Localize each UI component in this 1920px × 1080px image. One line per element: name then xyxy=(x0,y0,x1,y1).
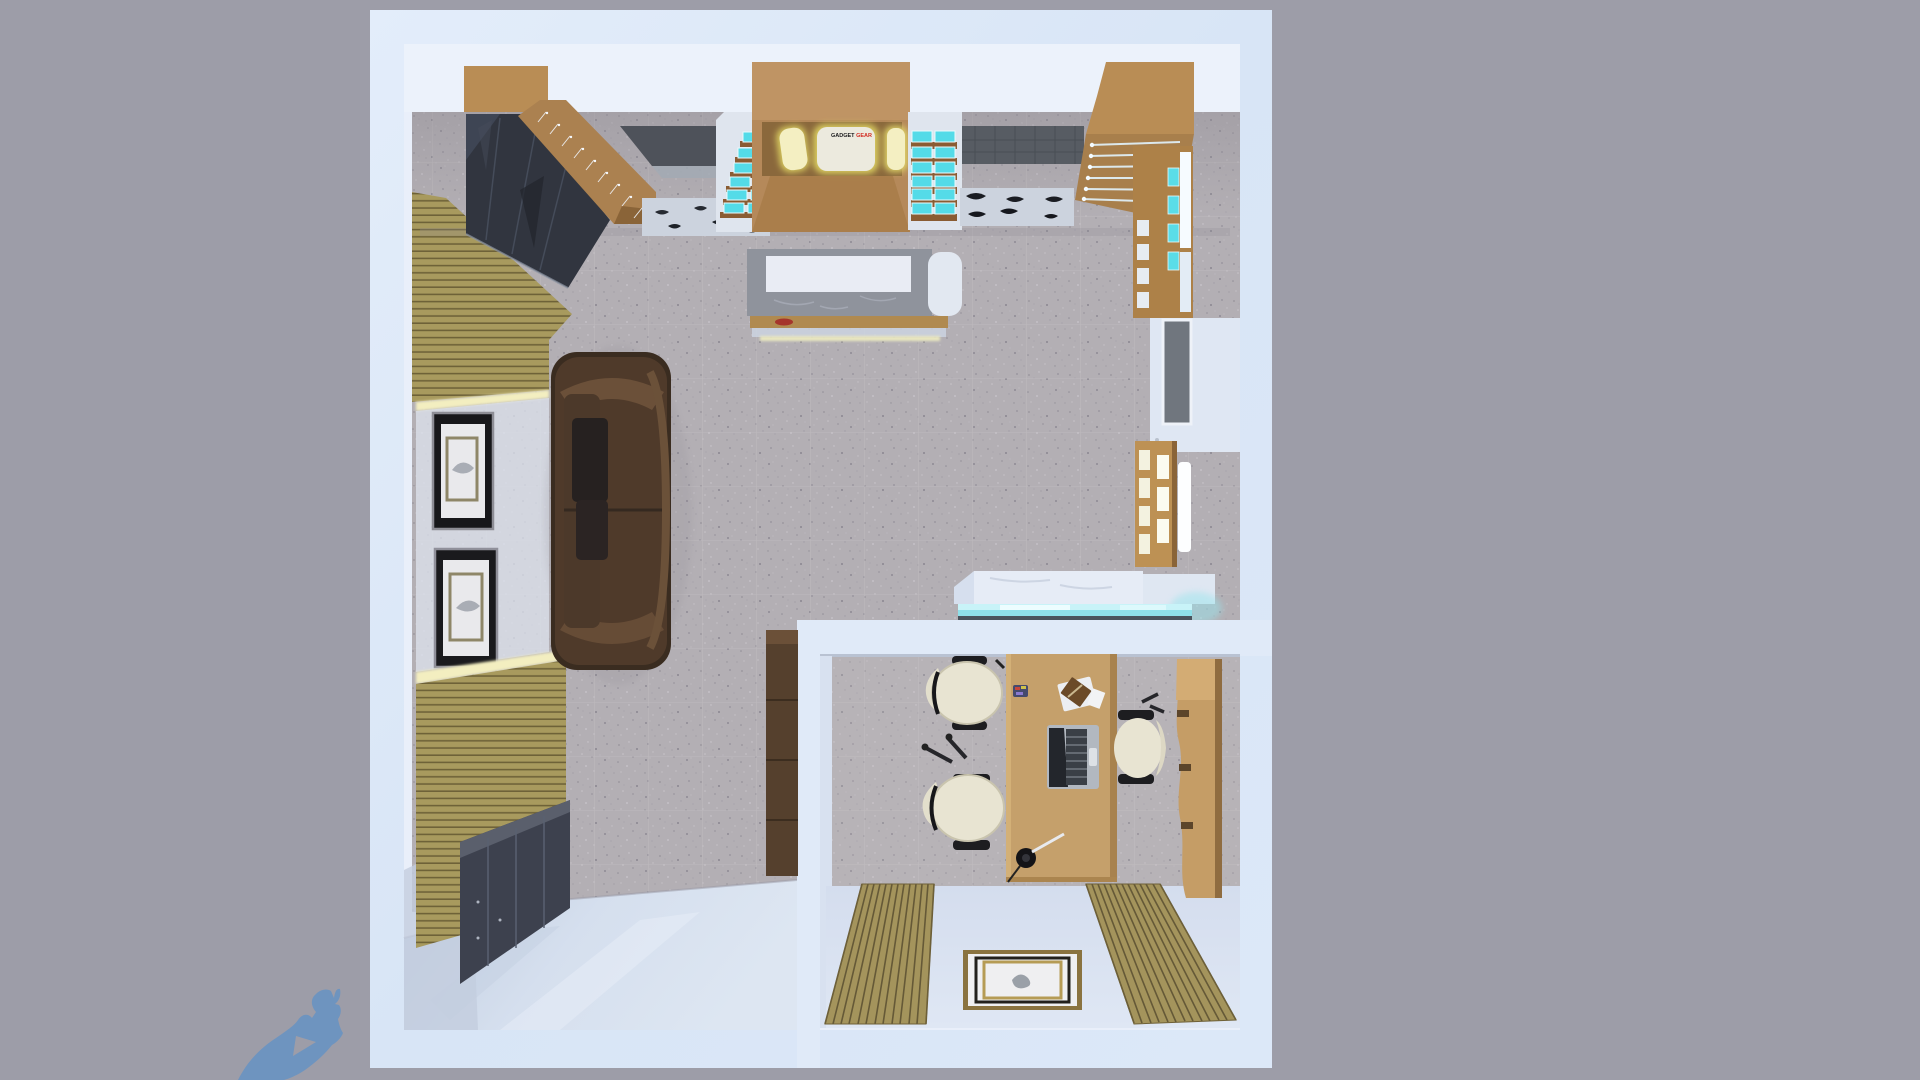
svg-text:GADGET GEAR: GADGET GEAR xyxy=(831,133,872,139)
